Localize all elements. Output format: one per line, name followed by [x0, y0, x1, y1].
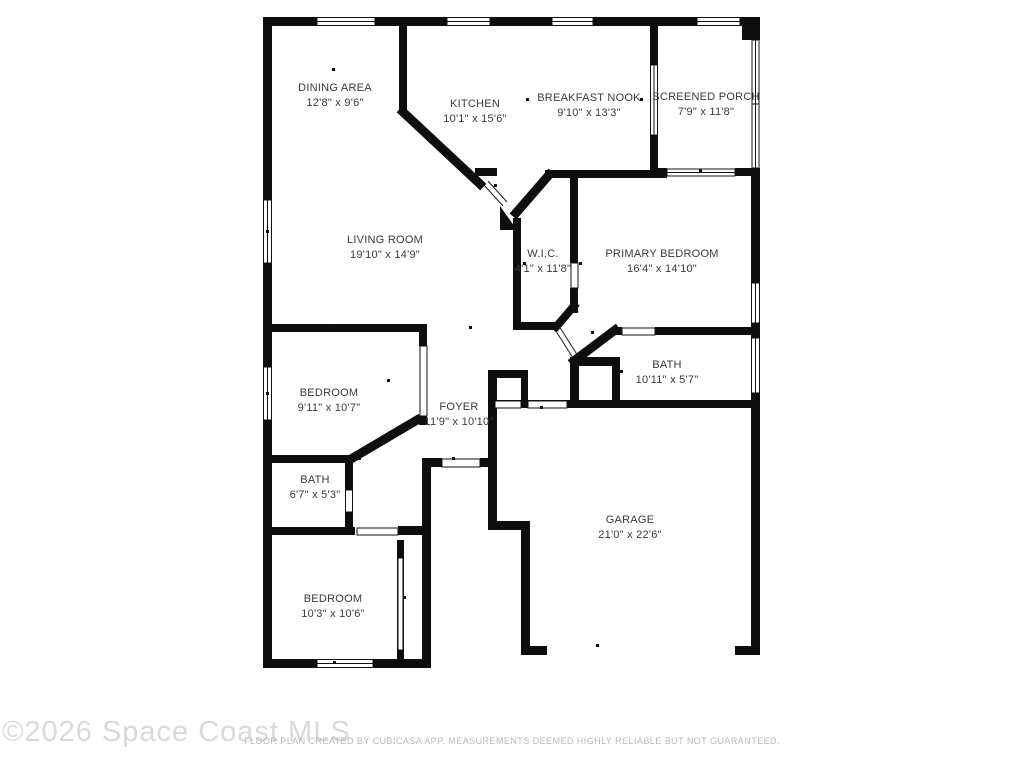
room-name: LIVING ROOM: [347, 233, 423, 248]
room-name: BATH: [636, 358, 699, 373]
wall-wic-bottom: [513, 322, 558, 330]
door-bath-primary: [622, 328, 655, 335]
room-dimensions: 21'0" x 22'6": [598, 528, 662, 543]
wall-bath2-bottom: [263, 527, 355, 535]
wall-garage-bottom-left: [521, 646, 547, 655]
door-entry-closet: [495, 401, 521, 408]
window-bottom-bedroom2: [317, 660, 373, 668]
room-name: SCREENED PORCH: [652, 90, 759, 105]
wall-hall-diagonal: [351, 420, 417, 459]
footer-disclaimer: FLOOR PLAN CREATED BY CUBICASA APP. MEAS…: [0, 736, 1024, 746]
room-dimensions: 7'9" x 11'8": [652, 105, 759, 120]
door-wic: [571, 263, 578, 288]
room-label-kitchen: KITCHEN 10'1" x 15'6": [443, 97, 507, 127]
room-label-garage: GARAGE 21'0" x 22'6": [598, 513, 662, 543]
wall-nook-diagonal: [516, 175, 549, 213]
wall-dining-kitchen: [399, 26, 407, 114]
room-name: DINING AREA: [298, 81, 372, 96]
wall-left: [263, 17, 272, 668]
wall-porch-left-top: [650, 17, 658, 65]
room-dimensions: 12'8" x 9'6": [298, 96, 372, 111]
room-name: BATH: [290, 473, 341, 488]
room-dimensions: 6'7" x 5'3": [290, 488, 341, 503]
room-label-primary-bedroom: PRIMARY BEDROOM 16'4" x 14'10": [605, 247, 718, 277]
room-label-breakfast-nook: BREAKFAST NOOK 9'10" x 13'3": [537, 91, 641, 121]
door-bath2: [346, 490, 353, 512]
room-label-dining-area: DINING AREA 12'8" x 9'6": [298, 81, 372, 111]
room-label-bath-2: BATH 6'7" x 5'3": [290, 473, 341, 503]
door-front: [442, 459, 480, 467]
room-name: FOYER: [424, 400, 493, 415]
wall-hall-bedroom2: [398, 526, 424, 535]
wall-porch-bottom-right: [735, 168, 752, 176]
door-garage-entry: [528, 401, 567, 408]
window-top-dining: [317, 18, 375, 26]
room-label-living-room: LIVING ROOM 19'10" x 14'9": [347, 233, 423, 263]
room-label-screened-porch: SCREENED PORCH 7'9" x 11'8": [652, 90, 759, 120]
floor-plan-page: DINING AREA 12'8" x 9'6" KITCHEN 10'1" x…: [0, 0, 1024, 768]
wall-living-bedroom: [263, 324, 427, 332]
wall-garage-west: [488, 370, 497, 530]
wall-entry-stub-left: [422, 458, 442, 467]
room-name: BEDROOM: [301, 592, 365, 607]
wall-primary-door-diagonal: [574, 330, 615, 361]
room-label-wic: W.I.C. 4'1" x 11'8": [515, 247, 571, 277]
room-dimensions: 16'4" x 14'10": [605, 262, 718, 277]
wall-entry-closet-right: [521, 370, 528, 408]
room-dimensions: 9'10" x 13'3": [537, 106, 641, 121]
room-label-bath-primary: BATH 10'11" x 5'7": [636, 358, 699, 388]
room-label-foyer: FOYER 11'9" x 10'10": [424, 400, 493, 430]
room-label-bedroom-2: BEDROOM 10'3" x 10'6": [301, 592, 365, 622]
room-name: GARAGE: [598, 513, 662, 528]
window-top-kitchen: [447, 18, 490, 26]
room-dimensions: 10'11" x 5'7": [636, 373, 699, 388]
wall-kitchen-stub: [475, 168, 497, 176]
window-top-porch: [697, 18, 740, 26]
room-dimensions: 4'1" x 11'8": [515, 262, 571, 277]
wall-bath2-top: [263, 455, 353, 463]
room-dimensions: 9'11" x 10'7": [298, 401, 361, 416]
room-dimensions: 11'9" x 10'10": [424, 415, 493, 430]
wall-garage-jog: [488, 521, 530, 530]
wall-wic-diagonal: [556, 306, 574, 327]
room-name: W.I.C.: [515, 247, 571, 262]
room-name: PRIMARY BEDROOM: [605, 247, 718, 262]
window-top-nook: [552, 18, 593, 26]
room-label-bedroom-1: BEDROOM 9'11" x 10'7": [298, 386, 361, 416]
room-name: KITCHEN: [443, 97, 507, 112]
wall-porch-corner: [742, 17, 760, 40]
wall-right: [751, 168, 760, 655]
door-bedroom2-closet: [398, 558, 403, 650]
room-name: BEDROOM: [298, 386, 361, 401]
wall-primary-top: [545, 170, 667, 178]
wall-bedroom1-right-top: [419, 332, 427, 346]
room-dimensions: 10'3" x 10'6": [301, 607, 365, 622]
room-dimensions: 19'10" x 14'9": [347, 248, 423, 263]
window-right-bath: [752, 338, 760, 393]
wall-garage-west-lower: [521, 530, 530, 655]
room-dimensions: 10'1" x 15'6": [443, 112, 507, 127]
wall-bath-top: [655, 327, 760, 335]
room-name: BREAKFAST NOOK: [537, 91, 641, 106]
window-right-primary: [752, 283, 760, 323]
floor-plan-drawing: [0, 0, 1024, 768]
door-bedroom2: [357, 528, 398, 535]
wall-bedroom2-right: [422, 458, 431, 668]
